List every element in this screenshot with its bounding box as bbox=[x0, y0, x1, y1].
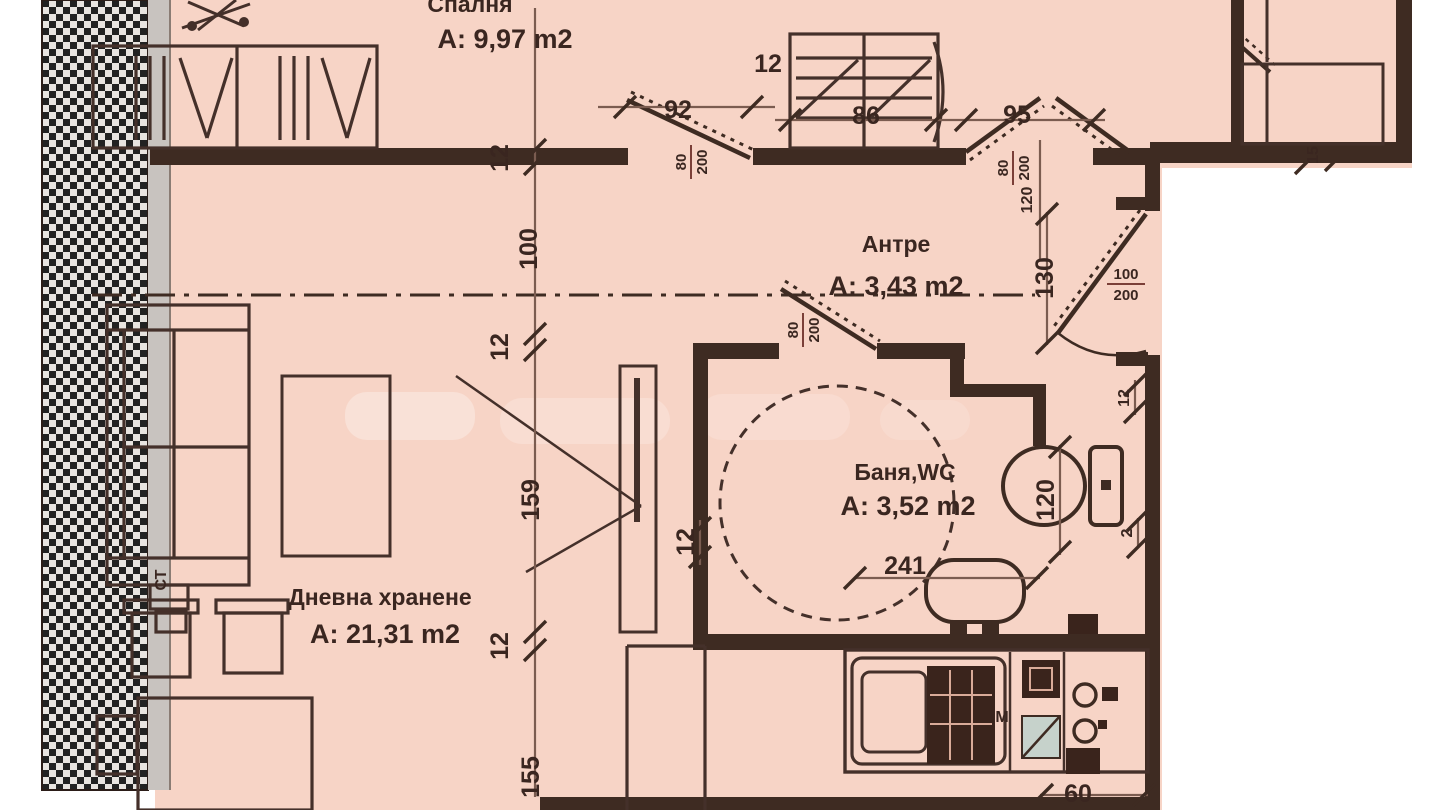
dim-wall-12: 12 bbox=[1116, 389, 1133, 407]
dim-top-92: 92 bbox=[664, 96, 692, 124]
bath-name: Баня,WC bbox=[854, 459, 955, 485]
dim-top-95: 95 bbox=[1003, 101, 1031, 129]
bath-area: A: 3,52 m2 bbox=[840, 491, 975, 521]
hall-area: A: 3,43 m2 bbox=[828, 271, 963, 301]
floor-plan: Спалня A: 9,97 m2 Антре A: 3,43 m2 Баня,… bbox=[0, 0, 1440, 810]
svg-text:200: 200 bbox=[1113, 287, 1138, 304]
sofa-table-label: СТ bbox=[153, 569, 170, 590]
dim-chain-12-top: 12 bbox=[486, 144, 514, 172]
bedroom-area: A: 9,97 m2 bbox=[437, 24, 572, 54]
dim-chain-100: 100 bbox=[515, 228, 543, 270]
stove bbox=[927, 666, 995, 764]
hall-name: Антре bbox=[862, 231, 931, 257]
dim-top-12: 12 bbox=[754, 50, 782, 78]
svg-text:100: 100 bbox=[1113, 266, 1138, 283]
dim-chain-12-mid: 12 bbox=[486, 333, 514, 361]
living-name: Дневна хранене bbox=[288, 584, 471, 610]
svg-text:200: 200 bbox=[1016, 155, 1033, 180]
svg-text:80: 80 bbox=[995, 160, 1012, 177]
bedroom-name: Спалня bbox=[427, 0, 512, 17]
dim-top-86: 86 bbox=[852, 102, 880, 130]
dim-wall-2: 2 bbox=[1119, 528, 1136, 537]
dim-basin-241: 241 bbox=[884, 552, 926, 580]
dim-bath-12: 12 bbox=[672, 528, 700, 556]
dim-chain-155: 155 bbox=[517, 756, 545, 798]
svg-text:80: 80 bbox=[673, 154, 690, 171]
living-area: A: 21,31 m2 bbox=[310, 619, 460, 649]
floor-plan-canvas: Спалня A: 9,97 m2 Антре A: 3,43 m2 Баня,… bbox=[0, 0, 1440, 810]
svg-text:80: 80 bbox=[785, 322, 802, 339]
dim-chain-159: 159 bbox=[517, 479, 545, 521]
svg-text:200: 200 bbox=[694, 149, 711, 174]
svg-text:200: 200 bbox=[806, 317, 823, 342]
dim-wc-120: 120 bbox=[1032, 479, 1060, 521]
dim-chain-12-low: 12 bbox=[486, 632, 514, 660]
dim-balcony-15: 15 bbox=[1305, 146, 1322, 164]
dim-hall-130: 130 bbox=[1031, 257, 1059, 299]
dim-hall-120: 120 bbox=[1019, 187, 1036, 214]
dim-kitchen-60: 60 bbox=[1064, 780, 1092, 808]
stove-label: М bbox=[995, 709, 1008, 726]
